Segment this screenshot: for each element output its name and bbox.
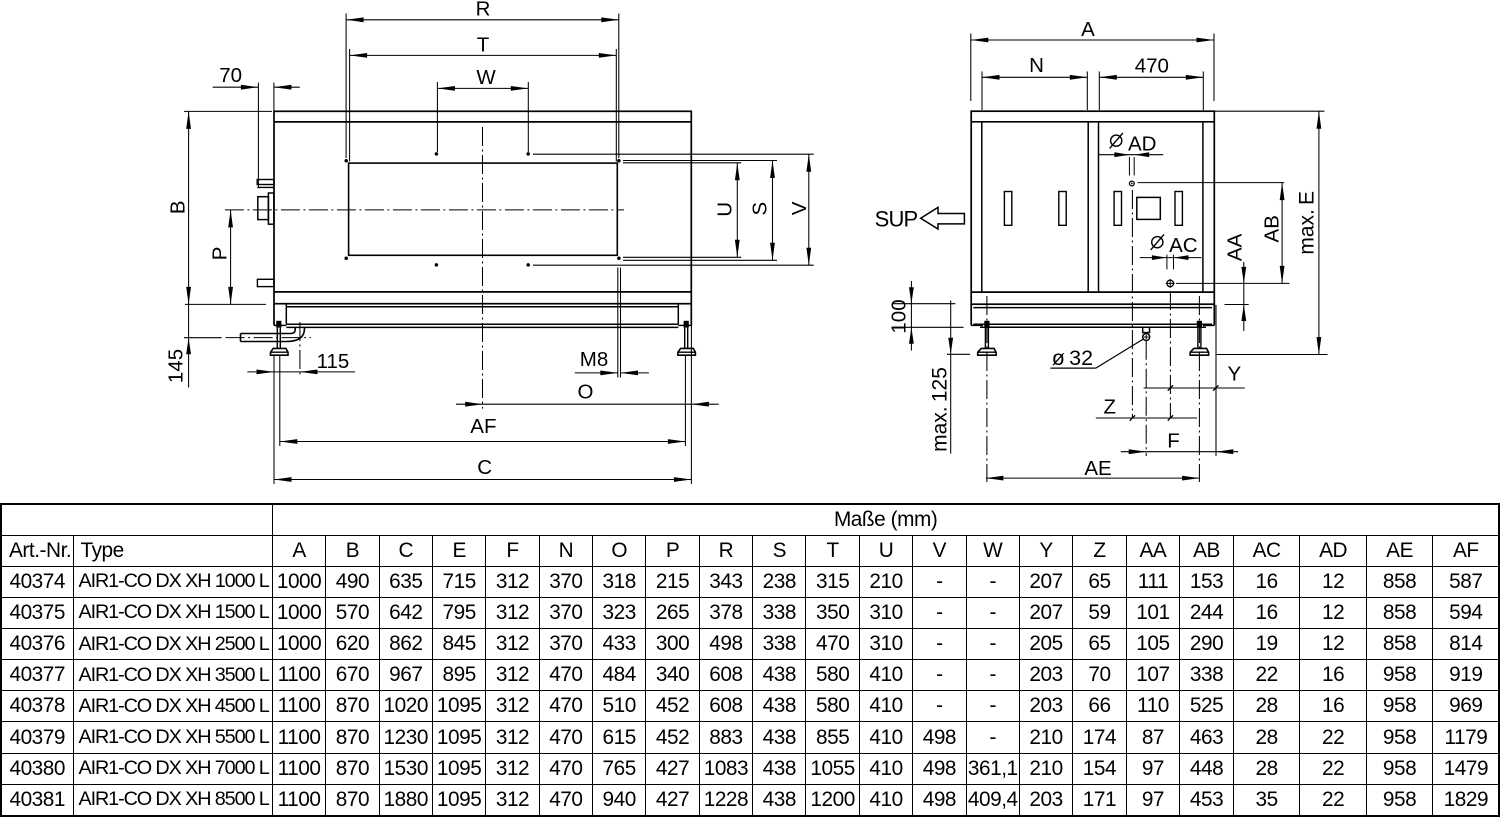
svg-text:S: S — [749, 202, 772, 216]
svg-text:Z: Z — [1104, 396, 1117, 419]
svg-text:P: P — [209, 247, 232, 261]
svg-text:AB: AB — [1261, 215, 1284, 242]
svg-text:70: 70 — [219, 64, 242, 87]
svg-text:O: O — [578, 381, 594, 404]
svg-text:A: A — [1081, 18, 1095, 41]
svg-text:Y: Y — [1227, 363, 1241, 386]
svg-text:B: B — [167, 200, 190, 214]
svg-text:N: N — [1029, 54, 1044, 77]
svg-text:U: U — [714, 202, 737, 217]
svg-text:SUP: SUP — [875, 207, 918, 232]
svg-text:R: R — [476, 0, 491, 21]
svg-text:470: 470 — [1135, 55, 1169, 78]
svg-text:M8: M8 — [580, 348, 608, 371]
svg-text:C: C — [477, 456, 492, 479]
svg-text:AD: AD — [1128, 132, 1156, 155]
svg-text:AE: AE — [1084, 457, 1111, 480]
svg-text:max. E: max. E — [1296, 191, 1319, 255]
svg-text:ø 32: ø 32 — [1052, 346, 1093, 370]
svg-text:AF: AF — [470, 415, 496, 438]
svg-text:V: V — [788, 201, 811, 215]
svg-text:W: W — [476, 66, 496, 89]
svg-text:115: 115 — [317, 350, 350, 373]
svg-text:AA: AA — [1224, 233, 1247, 261]
svg-text:100: 100 — [888, 299, 911, 333]
svg-text:F: F — [1167, 429, 1180, 452]
svg-text:T: T — [477, 34, 490, 57]
svg-text:145: 145 — [165, 349, 188, 383]
svg-text:AC: AC — [1169, 234, 1198, 257]
svg-text:max. 125: max. 125 — [929, 367, 952, 452]
